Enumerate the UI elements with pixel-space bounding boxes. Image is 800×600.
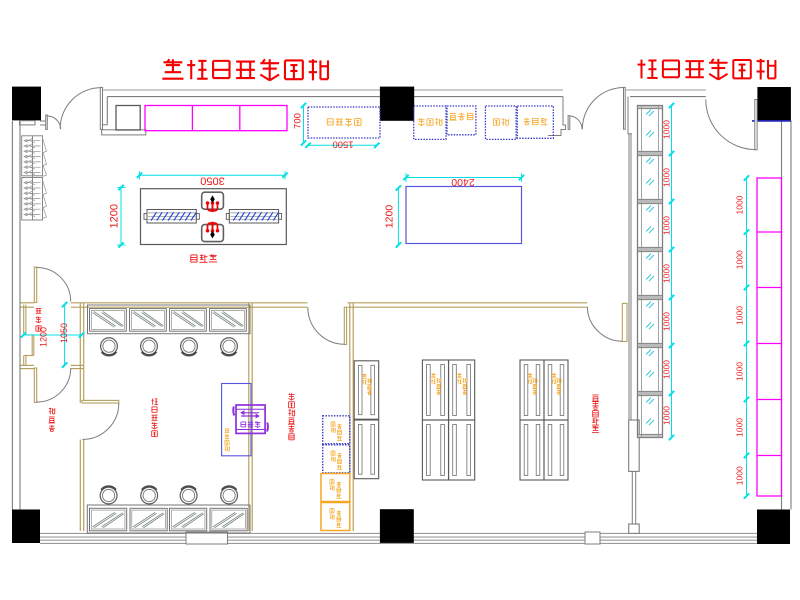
svg-text:1200: 1200 [39, 327, 49, 347]
svg-text:1000: 1000 [735, 250, 745, 269]
svg-text:700: 700 [293, 113, 304, 129]
svg-text:3050: 3050 [200, 175, 224, 187]
svg-text:1000: 1000 [662, 120, 672, 139]
svg-text:1500: 1500 [332, 139, 353, 150]
svg-text:1000: 1000 [735, 306, 745, 325]
svg-text:1000: 1000 [735, 195, 745, 214]
svg-text:1000: 1000 [735, 362, 745, 381]
svg-text:1050: 1050 [59, 323, 69, 343]
svg-text:1200: 1200 [384, 205, 396, 229]
svg-text:1200: 1200 [109, 204, 121, 228]
svg-text:1000: 1000 [735, 466, 745, 485]
svg-text:1000: 1000 [662, 216, 672, 235]
svg-text:1000: 1000 [662, 360, 672, 379]
svg-text:1000: 1000 [662, 312, 672, 331]
svg-text:1000: 1000 [662, 168, 672, 187]
svg-text:1000: 1000 [662, 406, 672, 425]
svg-text:2400: 2400 [451, 176, 475, 188]
svg-text:1000: 1000 [735, 418, 745, 437]
svg-text:1000: 1000 [662, 264, 672, 283]
